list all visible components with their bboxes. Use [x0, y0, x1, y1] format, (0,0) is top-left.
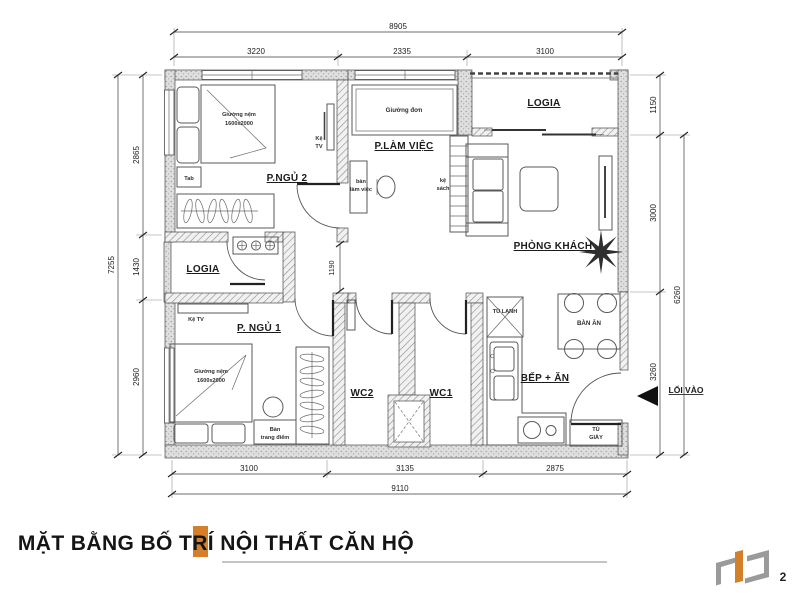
tv-shelf-bedroom2: [327, 104, 334, 150]
tv-shelf2-label2: TV: [315, 144, 322, 150]
door-arc-bedroom1: [295, 298, 333, 336]
dim-right-seg2: 3000: [649, 204, 658, 222]
room-living: PHÒNG KHÁCH: [466, 144, 623, 274]
room-bedroom1: Kệ TV P. NGỦ 1 Giường nệm 1600x2000 Bàn …: [170, 304, 329, 444]
room-label-logia-top: LOGIA: [527, 98, 560, 109]
plant: [579, 230, 623, 274]
technical-shaft: [388, 395, 430, 447]
dim-bottom-seg1: 3100: [240, 464, 258, 473]
dim-bottom-seg3: 2875: [546, 464, 564, 473]
dining-label: BÀN ĂN: [577, 320, 602, 327]
door-arc-wc2: [356, 298, 392, 334]
dim-left-total: 7255: [107, 256, 116, 274]
kitchen-counter: [487, 337, 566, 445]
shoe-label1: TỦ: [592, 426, 599, 433]
dim-right-seg3: 3260: [649, 363, 658, 381]
dim-bottom-total: 9110: [391, 484, 409, 493]
bookshelf: [450, 136, 468, 232]
room-label-work: P.LÀM VIỆC: [375, 139, 434, 152]
tab-label: Tab: [184, 176, 194, 182]
desk-label2: làm việc: [350, 187, 372, 193]
bookshelf-label1: kệ: [440, 178, 446, 184]
tv-shelf-bedroom1: [178, 304, 248, 313]
room-label-bedroom1: P. NGỦ 1: [237, 321, 281, 334]
title-bar: MẶT BẰNG BỐ TRÍ NỘI THẤT CĂN HỘ: [18, 526, 607, 562]
room-label-logia-left: LOGIA: [186, 264, 219, 275]
dim-left-seg2: 1430: [132, 258, 141, 276]
room-label-wc1: WC1: [429, 388, 452, 399]
door-arc-wc1: [430, 298, 466, 334]
tv-shelf2-label1: Kệ: [315, 136, 322, 142]
dim-right-seg1: 1150: [649, 96, 658, 114]
single-bed-label: Giường đơn: [386, 107, 423, 114]
dim-right-total: 6260: [673, 286, 682, 304]
dim-corridor: 1190: [329, 260, 336, 275]
shoe-label2: GIÀY: [589, 434, 603, 441]
page-number: 2: [780, 570, 787, 584]
page: Giường nệm 1600x2000 Tab Kệ TV P.NGỦ 2 G…: [0, 0, 800, 600]
door-arc-entrance: [571, 373, 621, 423]
dim-top-seg1: 3220: [247, 47, 265, 56]
dim-top-seg2: 2335: [393, 47, 411, 56]
room-label-living: PHÒNG KHÁCH: [514, 239, 593, 252]
dressing-label2: trang điểm: [261, 434, 290, 441]
room-logia-left: LOGIA: [186, 237, 278, 275]
entrance-arrow-icon: [637, 386, 658, 406]
dim-top-total: 8905: [389, 22, 407, 31]
dressing-label1: Bàn: [270, 427, 281, 433]
floor-plan-canvas: Giường nệm 1600x2000 Tab Kệ TV P.NGỦ 2 G…: [0, 0, 800, 600]
desk-label1: bàn: [356, 179, 367, 185]
room-label-bedroom2: P.NGỦ 2: [267, 171, 308, 184]
room-label-wc2: WC2: [350, 388, 373, 399]
room-bedroom2: Giường nệm 1600x2000 Tab Kệ TV P.NGỦ 2: [177, 85, 334, 228]
door-arc-bedroom2: [297, 185, 340, 228]
logo-shape-accent: [735, 550, 743, 583]
bed1-label: Giường nệm: [194, 369, 228, 375]
doors: [227, 184, 621, 424]
page-title: MẶT BẰNG BỐ TRÍ NỘI THẤT CĂN HỘ: [18, 531, 414, 555]
entrance-label: LỐI VÀO: [669, 384, 704, 395]
room-label-kitchen: BẾP + ĂN: [521, 371, 570, 384]
fridge-label: TỦ LẠNH: [493, 308, 518, 315]
logo: 2: [716, 550, 787, 586]
bed2-label: Giường nệm: [222, 112, 256, 118]
room-work: Giường đơn P.LÀM VIỆC bàn làm việc kệ sá…: [350, 85, 468, 232]
coffee-table: [520, 167, 558, 211]
logo-shape-right: [745, 550, 769, 584]
tv-shelf1-label: Kệ TV: [188, 317, 204, 323]
bed2-size: 1600x2000: [225, 121, 253, 127]
bed1-size: 1600x2000: [197, 378, 225, 384]
dim-left-seg1: 2865: [132, 146, 141, 164]
dim-bottom-seg2: 3135: [396, 464, 414, 473]
dim-top-seg3: 3100: [536, 47, 554, 56]
bookshelf-label2: sách: [437, 186, 450, 192]
entrance: LỐI VÀO: [637, 384, 704, 406]
dim-left-seg3: 2960: [132, 368, 141, 386]
